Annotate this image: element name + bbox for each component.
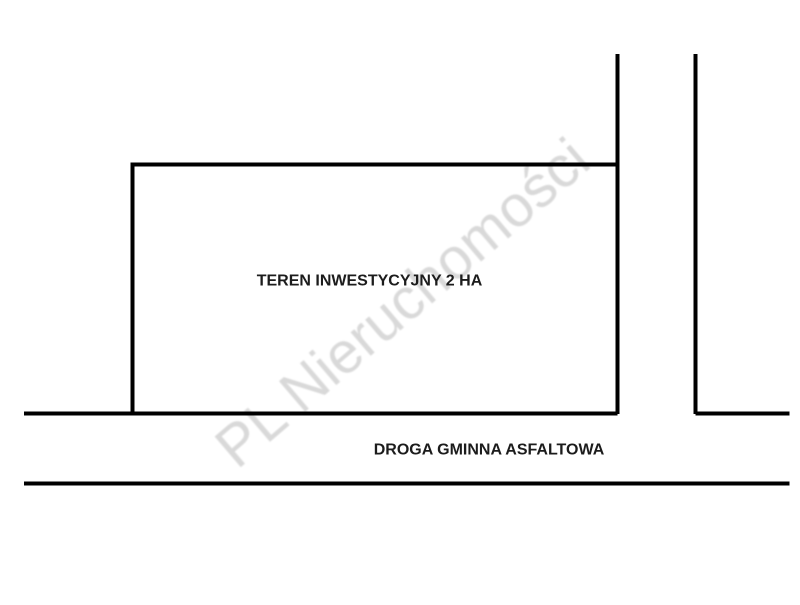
svg-text:DROGA GMINNA ASFALTOWA: DROGA GMINNA ASFALTOWA — [374, 442, 605, 459]
svg-text:TEREN INWESTYCYJNY 2 HA: TEREN INWESTYCYJNY 2 HA — [257, 273, 483, 290]
